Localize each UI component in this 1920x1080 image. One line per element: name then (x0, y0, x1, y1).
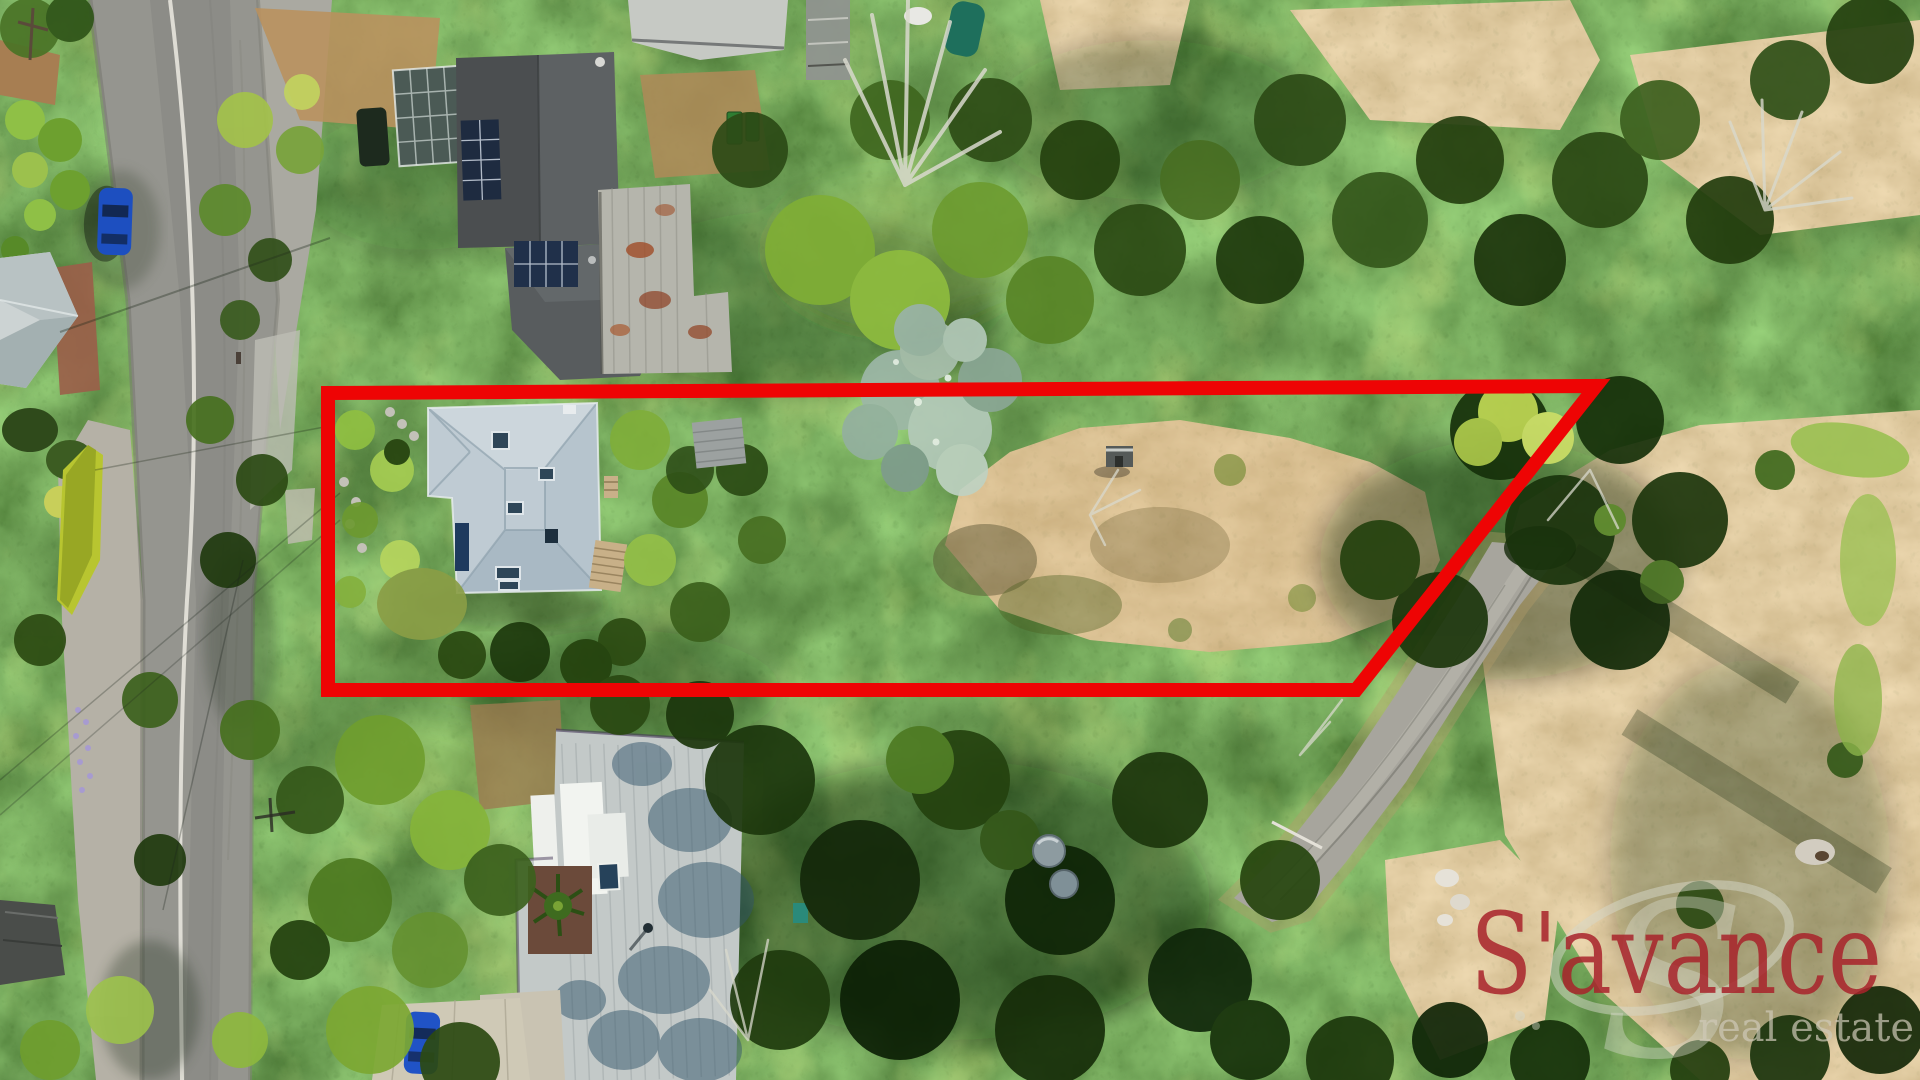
chimney (545, 529, 558, 543)
neighbor-roof-bottom-left (0, 900, 65, 985)
greenhouse (393, 66, 468, 167)
brand-tagline: real estate (1698, 1005, 1914, 1051)
courtyard (528, 866, 592, 954)
green-box (793, 903, 808, 923)
spa-cover (455, 523, 469, 571)
parked-van (356, 107, 390, 167)
outbuilding (692, 418, 747, 469)
aerial-photo-canvas: S S'avance real estate (0, 0, 1920, 1080)
bottom-dirt (470, 700, 565, 810)
listing-aerial-photo: S S'avance real estate (0, 0, 1920, 1080)
pergola (806, 0, 850, 80)
ac-unit (563, 405, 576, 414)
brand-wordmark: S'avance (1470, 890, 1882, 1020)
